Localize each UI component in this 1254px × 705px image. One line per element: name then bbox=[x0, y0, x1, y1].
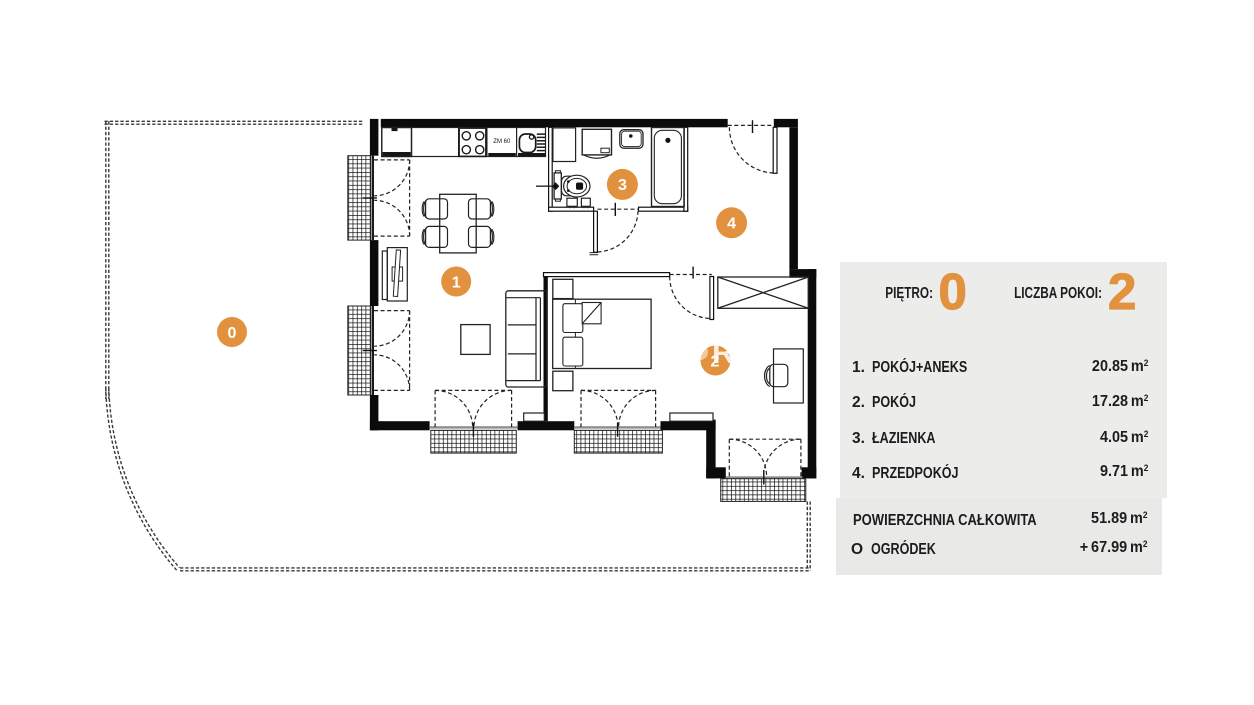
svg-text:3: 3 bbox=[618, 177, 627, 194]
svg-text:0: 0 bbox=[228, 325, 237, 342]
svg-text:ZM 60: ZM 60 bbox=[493, 139, 511, 145]
svg-text:1: 1 bbox=[452, 274, 461, 291]
svg-text:2: 2 bbox=[711, 353, 720, 370]
svg-text:4: 4 bbox=[727, 216, 736, 233]
